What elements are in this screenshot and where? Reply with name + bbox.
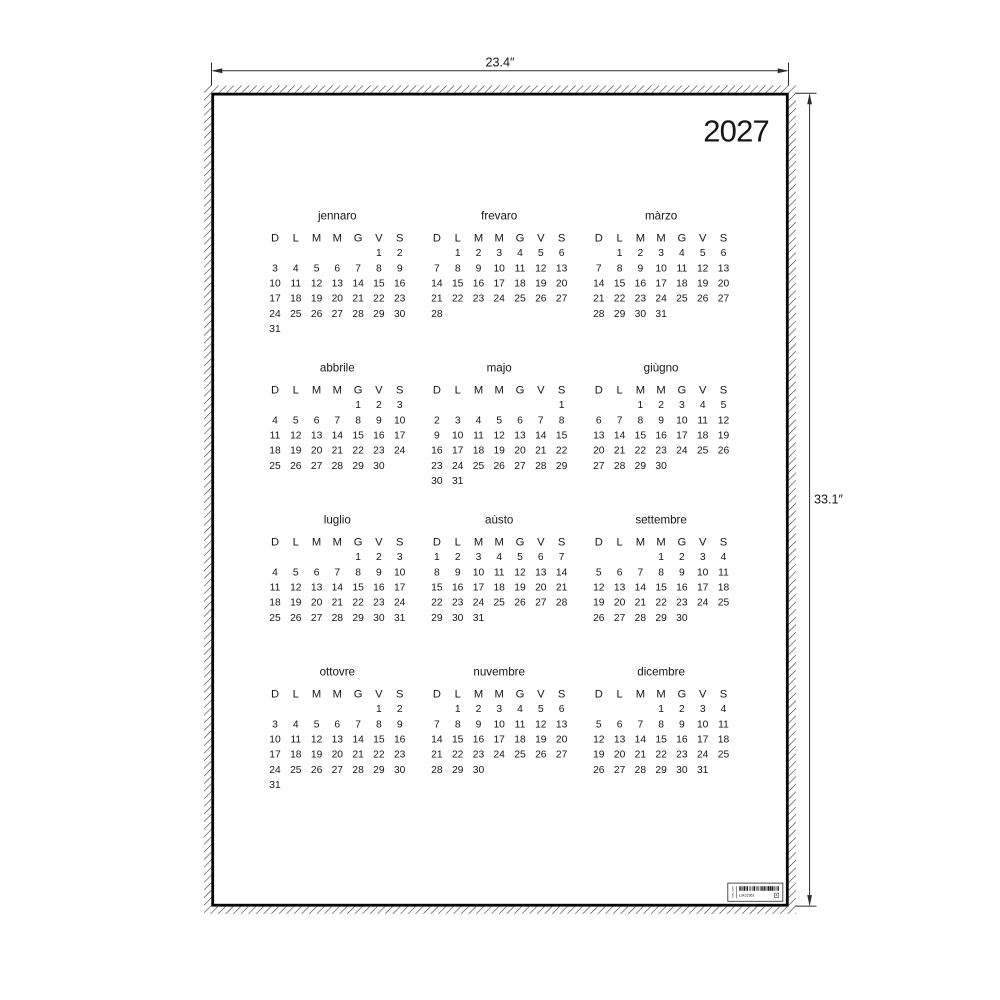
svg-text:17: 17 — [655, 279, 667, 290]
svg-text:29: 29 — [655, 765, 667, 776]
svg-text:24: 24 — [394, 598, 406, 609]
svg-text:30: 30 — [394, 765, 406, 776]
svg-text:4: 4 — [517, 704, 523, 715]
svg-text:20: 20 — [332, 294, 344, 305]
svg-text:11: 11 — [515, 263, 526, 274]
svg-text:nuvembre: nuvembre — [473, 666, 525, 679]
svg-text:17: 17 — [697, 735, 709, 746]
svg-text:G: G — [354, 537, 363, 549]
svg-text:3: 3 — [397, 400, 403, 411]
svg-text:dicembre: dicembre — [637, 666, 685, 679]
svg-text:11: 11 — [290, 735, 301, 746]
svg-text:M: M — [656, 537, 665, 549]
svg-text:8: 8 — [658, 719, 664, 730]
svg-text:20: 20 — [614, 598, 626, 609]
svg-text:11: 11 — [515, 719, 526, 730]
svg-text:21: 21 — [352, 294, 364, 305]
svg-text:31: 31 — [697, 765, 709, 776]
svg-text:D: D — [595, 689, 603, 701]
svg-text:3: 3 — [679, 400, 685, 411]
svg-text:12: 12 — [718, 415, 730, 426]
svg-text:31: 31 — [269, 780, 281, 791]
svg-text:19: 19 — [718, 431, 730, 442]
svg-text:7: 7 — [638, 719, 644, 730]
svg-text:21: 21 — [431, 750, 443, 761]
svg-text:10: 10 — [697, 719, 709, 730]
svg-text:4: 4 — [517, 248, 523, 259]
svg-text:2: 2 — [455, 552, 461, 563]
svg-text:V: V — [375, 233, 383, 245]
svg-text:13: 13 — [593, 431, 605, 442]
svg-text:S: S — [558, 233, 565, 245]
svg-text:9: 9 — [476, 263, 482, 274]
svg-text:5: 5 — [293, 415, 299, 426]
svg-text:3: 3 — [700, 552, 706, 563]
svg-text:16: 16 — [373, 431, 385, 442]
svg-text:5: 5 — [517, 552, 523, 563]
svg-text:S: S — [558, 385, 565, 397]
svg-text:14: 14 — [332, 583, 344, 594]
svg-text:9: 9 — [476, 719, 482, 730]
svg-text:12: 12 — [593, 583, 605, 594]
svg-text:D: D — [433, 385, 441, 397]
svg-text:G: G — [354, 233, 363, 245]
svg-text:19: 19 — [290, 446, 302, 457]
svg-text:25: 25 — [493, 598, 505, 609]
svg-text:10: 10 — [269, 279, 281, 290]
svg-text:26: 26 — [593, 613, 605, 624]
svg-text:8: 8 — [434, 567, 440, 578]
svg-text:S: S — [558, 537, 565, 549]
svg-text:20: 20 — [514, 446, 526, 457]
svg-text:L: L — [616, 689, 622, 701]
svg-text:13: 13 — [332, 279, 344, 290]
svg-text:30: 30 — [635, 309, 647, 320]
svg-text:7: 7 — [617, 415, 623, 426]
svg-text:23.4″: 23.4″ — [486, 56, 516, 70]
svg-text:10: 10 — [493, 719, 505, 730]
svg-text:23: 23 — [676, 750, 688, 761]
svg-text:26: 26 — [535, 294, 547, 305]
svg-text:28: 28 — [614, 461, 626, 472]
svg-text:15: 15 — [452, 735, 464, 746]
svg-text:20: 20 — [593, 446, 605, 457]
svg-text:10: 10 — [676, 415, 688, 426]
svg-text:28: 28 — [431, 309, 443, 320]
svg-text:6: 6 — [721, 248, 727, 259]
svg-text:3: 3 — [476, 552, 482, 563]
svg-text:3: 3 — [272, 719, 278, 730]
svg-text:28: 28 — [535, 461, 547, 472]
svg-text:17: 17 — [269, 750, 281, 761]
svg-text:25: 25 — [514, 294, 526, 305]
svg-text:19: 19 — [697, 279, 709, 290]
svg-text:3: 3 — [700, 704, 706, 715]
svg-text:10: 10 — [452, 431, 464, 442]
svg-text:M: M — [656, 689, 665, 701]
svg-text:M: M — [636, 537, 645, 549]
svg-text:20: 20 — [556, 735, 568, 746]
svg-text:7: 7 — [559, 552, 565, 563]
svg-text:M: M — [474, 689, 483, 701]
svg-text:G: G — [678, 233, 687, 245]
svg-text:15: 15 — [556, 431, 568, 442]
svg-text:13: 13 — [311, 583, 323, 594]
svg-text:D: D — [433, 689, 441, 701]
svg-text:15: 15 — [373, 279, 385, 290]
svg-text:6: 6 — [334, 263, 340, 274]
svg-text:9: 9 — [434, 431, 440, 442]
svg-text:9: 9 — [638, 263, 644, 274]
svg-text:30: 30 — [655, 461, 667, 472]
svg-text:14: 14 — [535, 431, 547, 442]
svg-text:13: 13 — [535, 567, 547, 578]
svg-text:16: 16 — [676, 735, 688, 746]
svg-text:17: 17 — [493, 735, 505, 746]
svg-text:10: 10 — [269, 735, 281, 746]
svg-text:19: 19 — [311, 750, 323, 761]
svg-text:14: 14 — [614, 431, 626, 442]
svg-text:12: 12 — [290, 431, 302, 442]
svg-text:6: 6 — [517, 415, 523, 426]
svg-text:settembre: settembre — [635, 514, 687, 527]
svg-text:29: 29 — [352, 613, 364, 624]
svg-text:M: M — [495, 537, 504, 549]
svg-text:23: 23 — [635, 294, 647, 305]
svg-text:5: 5 — [721, 400, 727, 411]
svg-text:G: G — [678, 537, 687, 549]
svg-text:10: 10 — [394, 415, 406, 426]
svg-text:M: M — [333, 233, 342, 245]
svg-text:24: 24 — [269, 309, 281, 320]
svg-text:S: S — [396, 233, 403, 245]
svg-text:L: L — [455, 385, 461, 397]
svg-text:7: 7 — [355, 263, 361, 274]
svg-text:M: M — [312, 385, 321, 397]
svg-text:19: 19 — [514, 583, 526, 594]
svg-text:28: 28 — [635, 765, 647, 776]
svg-text:4: 4 — [700, 400, 706, 411]
svg-text:V: V — [699, 385, 707, 397]
svg-text:D: D — [271, 537, 279, 549]
svg-text:11: 11 — [697, 415, 708, 426]
svg-text:D: D — [433, 233, 441, 245]
svg-text:4: 4 — [496, 552, 502, 563]
svg-text:29: 29 — [655, 613, 667, 624]
svg-text:31: 31 — [452, 476, 464, 487]
svg-text:1: 1 — [638, 400, 644, 411]
svg-text:L: L — [616, 385, 622, 397]
svg-text:15: 15 — [352, 583, 364, 594]
svg-text:20: 20 — [614, 750, 626, 761]
svg-text:23: 23 — [373, 598, 385, 609]
svg-text:14: 14 — [332, 431, 344, 442]
svg-text:2: 2 — [476, 248, 482, 259]
svg-text:15: 15 — [655, 583, 667, 594]
svg-text:23: 23 — [452, 598, 464, 609]
svg-text:15: 15 — [452, 279, 464, 290]
svg-text:29: 29 — [635, 461, 647, 472]
svg-text:G: G — [354, 385, 363, 397]
svg-text:19: 19 — [593, 750, 605, 761]
svg-text:13: 13 — [514, 431, 526, 442]
svg-text:25: 25 — [473, 461, 485, 472]
svg-text:4: 4 — [721, 704, 727, 715]
svg-text:12: 12 — [514, 567, 526, 578]
svg-text:3: 3 — [496, 248, 502, 259]
svg-text:8: 8 — [355, 415, 361, 426]
svg-text:26: 26 — [493, 461, 505, 472]
svg-text:5: 5 — [496, 415, 502, 426]
svg-text:15: 15 — [352, 431, 364, 442]
svg-text:ottovre: ottovre — [320, 666, 355, 679]
svg-text:V: V — [537, 537, 545, 549]
svg-text:25: 25 — [269, 461, 281, 472]
svg-text:M: M — [656, 233, 665, 245]
svg-text:7: 7 — [596, 263, 602, 274]
svg-text:16: 16 — [473, 735, 485, 746]
svg-text:28: 28 — [352, 765, 364, 776]
svg-text:22: 22 — [352, 598, 364, 609]
svg-text:1: 1 — [355, 552, 361, 563]
svg-text:17: 17 — [394, 431, 406, 442]
svg-text:S: S — [396, 385, 403, 397]
svg-text:M: M — [312, 689, 321, 701]
svg-text:V: V — [699, 233, 707, 245]
svg-text:10: 10 — [493, 263, 505, 274]
svg-text:21: 21 — [332, 598, 344, 609]
svg-text:G: G — [516, 689, 525, 701]
svg-text:D: D — [271, 689, 279, 701]
svg-text:màrzo: màrzo — [645, 210, 677, 223]
svg-text:M: M — [656, 385, 665, 397]
svg-text:18: 18 — [493, 583, 505, 594]
svg-text:5: 5 — [538, 704, 544, 715]
svg-text:31: 31 — [269, 324, 281, 335]
svg-text:17: 17 — [269, 294, 281, 305]
svg-text:20: 20 — [556, 279, 568, 290]
svg-text:19: 19 — [290, 598, 302, 609]
svg-text:5: 5 — [293, 567, 299, 578]
svg-text:12: 12 — [290, 583, 302, 594]
svg-text:23: 23 — [431, 461, 443, 472]
svg-text:4: 4 — [272, 567, 278, 578]
svg-text:13: 13 — [311, 431, 323, 442]
svg-text:22: 22 — [452, 294, 464, 305]
svg-text:21: 21 — [352, 750, 364, 761]
svg-text:21: 21 — [556, 583, 568, 594]
svg-text:18: 18 — [514, 735, 526, 746]
svg-text:31: 31 — [473, 613, 485, 624]
svg-text:25: 25 — [718, 598, 730, 609]
svg-text:5: 5 — [700, 248, 706, 259]
svg-text:D: D — [433, 537, 441, 549]
svg-text:26: 26 — [718, 446, 730, 457]
svg-text:27: 27 — [593, 461, 605, 472]
svg-text:30: 30 — [373, 461, 385, 472]
svg-text:4: 4 — [293, 719, 299, 730]
svg-text:18: 18 — [290, 750, 302, 761]
svg-text:L: L — [293, 537, 299, 549]
svg-text:9: 9 — [397, 263, 403, 274]
svg-text:27: 27 — [718, 294, 730, 305]
svg-text:L: L — [293, 385, 299, 397]
svg-text:3: 3 — [397, 552, 403, 563]
svg-text:22: 22 — [373, 294, 385, 305]
svg-text:17: 17 — [452, 446, 464, 457]
svg-text:7: 7 — [538, 415, 544, 426]
svg-text:23: 23 — [473, 750, 485, 761]
svg-text:10: 10 — [394, 567, 406, 578]
svg-text:27: 27 — [535, 598, 547, 609]
svg-text:24: 24 — [493, 750, 505, 761]
svg-text:D: D — [271, 385, 279, 397]
svg-text:17: 17 — [394, 583, 406, 594]
svg-text:17: 17 — [676, 431, 688, 442]
svg-text:24: 24 — [394, 446, 406, 457]
svg-text:8: 8 — [617, 263, 623, 274]
svg-text:13: 13 — [556, 719, 568, 730]
svg-text:28: 28 — [332, 461, 344, 472]
svg-text:6: 6 — [334, 719, 340, 730]
svg-text:22: 22 — [373, 750, 385, 761]
svg-text:23: 23 — [473, 294, 485, 305]
svg-text:13: 13 — [556, 263, 568, 274]
svg-text:11: 11 — [718, 567, 729, 578]
svg-text:18: 18 — [269, 598, 281, 609]
svg-text:M: M — [333, 385, 342, 397]
svg-text:4: 4 — [679, 248, 685, 259]
svg-text:9: 9 — [376, 415, 382, 426]
svg-text:20: 20 — [332, 750, 344, 761]
svg-text:L3K22363: L3K22363 — [739, 893, 755, 897]
svg-text:8: 8 — [376, 263, 382, 274]
svg-text:26: 26 — [290, 613, 302, 624]
svg-text:3: 3 — [658, 248, 664, 259]
svg-text:12: 12 — [535, 263, 547, 274]
svg-text:22: 22 — [635, 446, 647, 457]
svg-text:16: 16 — [373, 583, 385, 594]
svg-text:18: 18 — [473, 446, 485, 457]
svg-text:21: 21 — [635, 750, 647, 761]
svg-text:17: 17 — [493, 279, 505, 290]
svg-text:2: 2 — [397, 248, 403, 259]
svg-text:lulu.com: lulu.com — [730, 886, 734, 898]
svg-text:11: 11 — [494, 567, 505, 578]
svg-text:27: 27 — [514, 461, 526, 472]
svg-text:19: 19 — [593, 598, 605, 609]
svg-text:9: 9 — [397, 719, 403, 730]
svg-text:S: S — [396, 537, 403, 549]
svg-text:1: 1 — [455, 704, 461, 715]
svg-text:16: 16 — [655, 431, 667, 442]
svg-text:5: 5 — [538, 248, 544, 259]
svg-text:M: M — [495, 385, 504, 397]
svg-text:M: M — [312, 537, 321, 549]
svg-text:1: 1 — [355, 400, 361, 411]
svg-text:6: 6 — [617, 719, 623, 730]
svg-text:majo: majo — [487, 362, 512, 375]
svg-text:luglio: luglio — [324, 514, 351, 527]
svg-text:24: 24 — [473, 598, 485, 609]
svg-text:9: 9 — [679, 719, 685, 730]
svg-text:18: 18 — [697, 431, 709, 442]
svg-text:21: 21 — [593, 294, 605, 305]
svg-text:9: 9 — [679, 567, 685, 578]
svg-text:V: V — [375, 385, 383, 397]
svg-text:6: 6 — [559, 248, 565, 259]
svg-text:29: 29 — [431, 613, 443, 624]
svg-text:L: L — [293, 233, 299, 245]
svg-text:5: 5 — [596, 567, 602, 578]
svg-text:24: 24 — [269, 765, 281, 776]
svg-text:14: 14 — [635, 583, 647, 594]
svg-text:2: 2 — [434, 415, 440, 426]
svg-text:4: 4 — [775, 894, 777, 898]
svg-text:25: 25 — [697, 446, 709, 457]
svg-text:2: 2 — [679, 552, 685, 563]
svg-text:16: 16 — [431, 446, 443, 457]
svg-text:9: 9 — [658, 415, 664, 426]
svg-text:22: 22 — [655, 598, 667, 609]
svg-text:G: G — [678, 689, 687, 701]
svg-text:8: 8 — [638, 415, 644, 426]
svg-text:11: 11 — [270, 583, 281, 594]
svg-text:14: 14 — [593, 279, 605, 290]
svg-text:M: M — [312, 233, 321, 245]
svg-text:18: 18 — [676, 279, 688, 290]
svg-text:G: G — [516, 385, 525, 397]
svg-text:12: 12 — [697, 263, 709, 274]
svg-text:18: 18 — [514, 279, 526, 290]
svg-text:8: 8 — [376, 719, 382, 730]
svg-text:30: 30 — [373, 613, 385, 624]
svg-text:18: 18 — [718, 583, 730, 594]
svg-text:12: 12 — [493, 431, 505, 442]
svg-text:20: 20 — [535, 583, 547, 594]
svg-text:13: 13 — [614, 735, 626, 746]
svg-text:25: 25 — [514, 750, 526, 761]
svg-text:7: 7 — [355, 719, 361, 730]
svg-text:V: V — [537, 689, 545, 701]
svg-text:19: 19 — [311, 294, 323, 305]
svg-text:22: 22 — [556, 446, 568, 457]
svg-text:G: G — [678, 385, 687, 397]
svg-text:V: V — [375, 689, 383, 701]
svg-text:30: 30 — [394, 309, 406, 320]
svg-text:abbrile: abbrile — [320, 362, 355, 375]
svg-text:8: 8 — [455, 719, 461, 730]
svg-text:19: 19 — [535, 279, 547, 290]
svg-text:L: L — [455, 233, 461, 245]
svg-text:7: 7 — [434, 263, 440, 274]
svg-text:11: 11 — [270, 431, 281, 442]
svg-text:30: 30 — [676, 765, 688, 776]
svg-text:27: 27 — [614, 765, 626, 776]
svg-text:28: 28 — [635, 613, 647, 624]
svg-text:25: 25 — [290, 309, 302, 320]
svg-text:14: 14 — [635, 735, 647, 746]
svg-text:17: 17 — [697, 583, 709, 594]
svg-text:2: 2 — [476, 704, 482, 715]
svg-text:1: 1 — [376, 704, 382, 715]
svg-text:24: 24 — [493, 294, 505, 305]
svg-text:16: 16 — [394, 279, 406, 290]
svg-text:G: G — [516, 233, 525, 245]
svg-text:1: 1 — [617, 248, 623, 259]
svg-text:14: 14 — [431, 735, 443, 746]
svg-text:6: 6 — [559, 704, 565, 715]
